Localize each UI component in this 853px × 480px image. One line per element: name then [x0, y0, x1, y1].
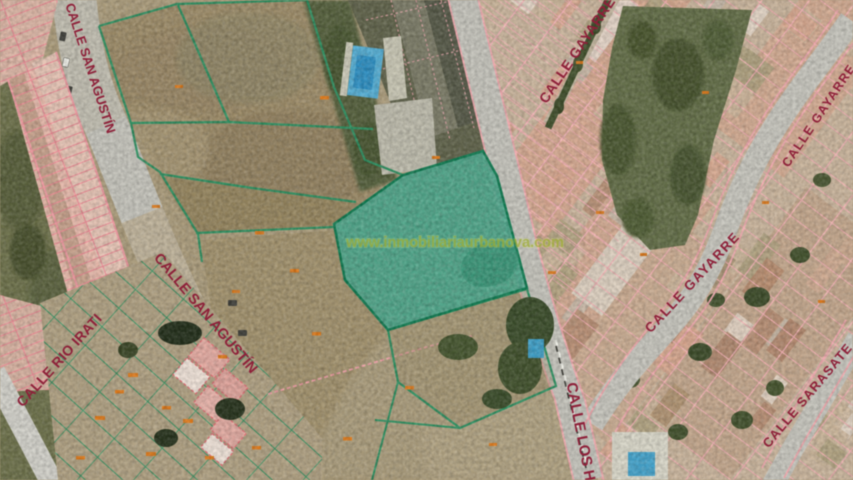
- svg-text:www.inmobiliariaurbanova.com: www.inmobiliariaurbanova.com: [345, 235, 564, 251]
